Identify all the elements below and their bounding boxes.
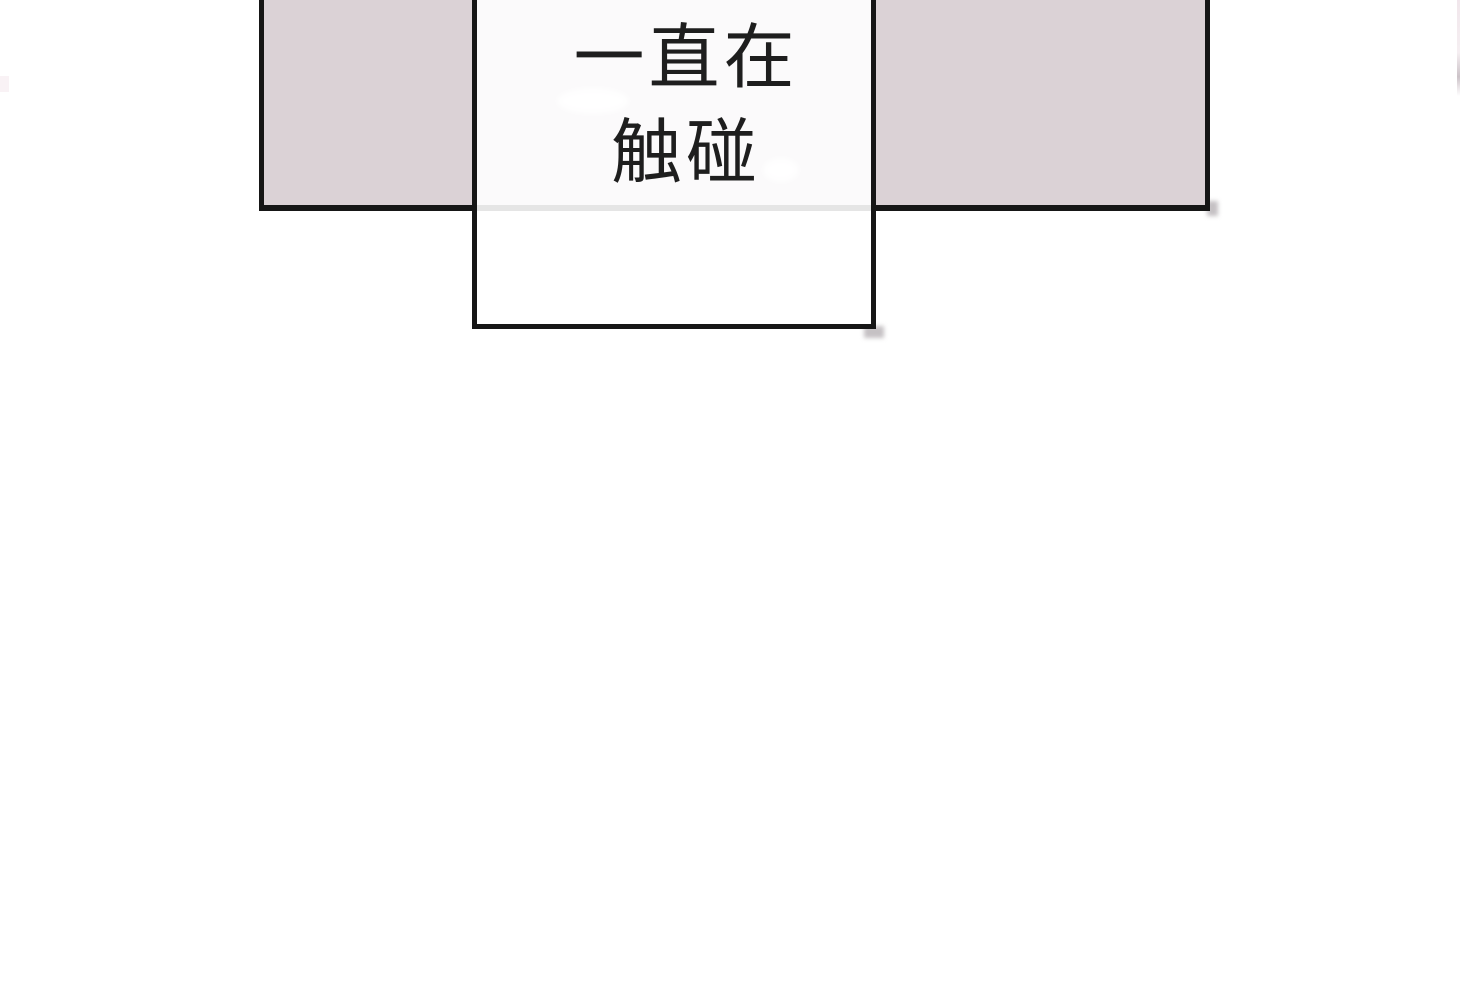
speech-text-line-1: 一直在 — [489, 11, 883, 106]
speech-text-line-2: 触碰 — [489, 106, 883, 201]
comic-page: 一直在 触碰 — [0, 0, 1460, 996]
speech-bubble: 一直在 触碰 — [472, 0, 876, 329]
left-edge-artifact — [0, 76, 9, 92]
speech-text: 一直在 触碰 — [489, 0, 883, 201]
